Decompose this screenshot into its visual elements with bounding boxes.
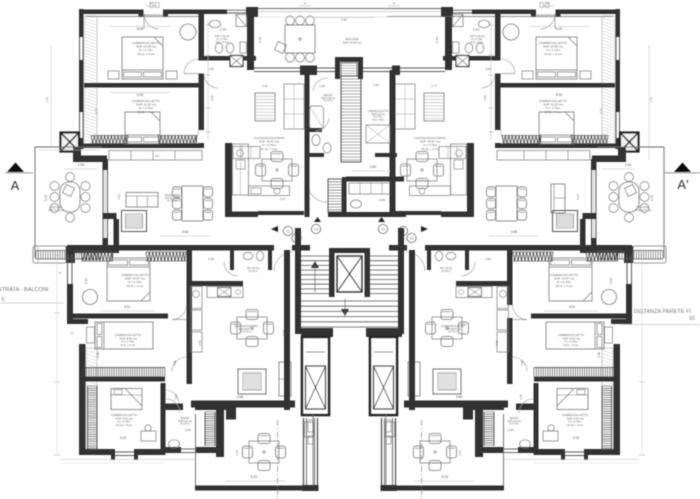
svg-text:5.55: 5.55 (495, 340, 499, 346)
svg-text:2.80: 2.80 (649, 97, 653, 103)
svg-text:S11: S11 (155, 154, 160, 158)
svg-text:4.27: 4.27 (576, 194, 580, 200)
svg-text:4.92: 4.92 (124, 305, 130, 309)
svg-text:5.00: 5.00 (137, 93, 144, 97)
svg-text:2.86: 2.86 (609, 278, 613, 284)
svg-text:3.65: 3.65 (379, 198, 385, 202)
svg-text:3.82: 3.82 (210, 95, 214, 101)
svg-text:2.88: 2.88 (96, 352, 100, 358)
svg-text:4.88: 4.88 (456, 395, 462, 399)
svg-text:3.74: 3.74 (235, 450, 239, 456)
svg-text:3.74: 3.74 (458, 450, 462, 456)
svg-text:7.97: 7.97 (341, 18, 348, 22)
svg-text:3.26: 3.26 (262, 84, 268, 88)
svg-text:5.33: 5.33 (442, 475, 448, 479)
svg-text:4.27: 4.27 (117, 194, 121, 200)
svg-text:1.00: 1.00 (319, 84, 325, 88)
svg-text:2.71: 2.71 (599, 108, 603, 114)
svg-text:4.92: 4.92 (569, 305, 575, 309)
svg-text:DISTANZA PARETE FI: DISTANZA PARETE FI (634, 309, 691, 315)
svg-text:2.10: 2.10 (473, 28, 479, 32)
svg-text:1.00: 1.00 (485, 67, 491, 71)
svg-text:5: 5 (2, 297, 5, 303)
svg-text:5.00: 5.00 (556, 27, 563, 31)
svg-text:3.29: 3.29 (120, 436, 126, 440)
svg-text:4.88: 4.88 (182, 230, 188, 234)
svg-text:1.00: 1.00 (174, 394, 178, 400)
svg-text:A': A' (677, 177, 688, 192)
svg-text:13: 13 (381, 227, 385, 231)
svg-text:1.00: 1.00 (208, 67, 214, 71)
svg-text:13: 13 (314, 227, 318, 231)
svg-text:4.88: 4.88 (511, 230, 517, 234)
svg-text:5.33: 5.33 (251, 475, 257, 479)
svg-text:3.29: 3.29 (573, 436, 579, 440)
svg-text:2.49: 2.49 (258, 37, 262, 43)
svg-text:2.88: 2.88 (597, 352, 601, 358)
svg-text:3.99: 3.99 (173, 360, 177, 366)
svg-text:11: 11 (286, 229, 290, 233)
svg-text:2.80: 2.80 (45, 97, 49, 103)
svg-text:5.00: 5.00 (556, 93, 563, 97)
svg-text:2.87: 2.87 (185, 428, 191, 432)
svg-text:5.55: 5.55 (198, 340, 202, 346)
svg-text:2.08: 2.08 (485, 257, 491, 261)
svg-text:5.00: 5.00 (137, 27, 144, 31)
svg-text:A: A (11, 178, 20, 193)
svg-text:2.77: 2.77 (431, 84, 437, 88)
svg-text:3.82: 3.82 (483, 95, 487, 101)
svg-text:2.71: 2.71 (94, 108, 98, 114)
svg-text:13: 13 (410, 236, 414, 240)
svg-text:4.88: 4.88 (237, 395, 243, 399)
svg-text:2.87: 2.87 (508, 428, 514, 432)
svg-text:2.96: 2.96 (625, 163, 631, 167)
svg-text:2.80: 2.80 (370, 165, 376, 169)
svg-text:2.60: 2.60 (373, 83, 379, 87)
svg-text:5.23: 5.23 (650, 195, 654, 201)
svg-text:4.67: 4.67 (280, 197, 286, 201)
svg-text:3.99: 3.99 (520, 360, 524, 366)
svg-text:2.08: 2.08 (208, 257, 214, 261)
svg-text:2.96: 2.96 (78, 163, 84, 167)
svg-text:50: 50 (689, 316, 695, 322)
svg-text:5.23: 5.23 (44, 195, 48, 201)
svg-text:STRATA - BALCONI: STRATA - BALCONI (0, 287, 49, 293)
svg-text:1.00: 1.00 (519, 394, 523, 400)
svg-text:2.86: 2.86 (84, 278, 88, 284)
svg-text:2.10: 2.10 (220, 28, 226, 32)
svg-text:2.49: 2.49 (435, 37, 439, 43)
